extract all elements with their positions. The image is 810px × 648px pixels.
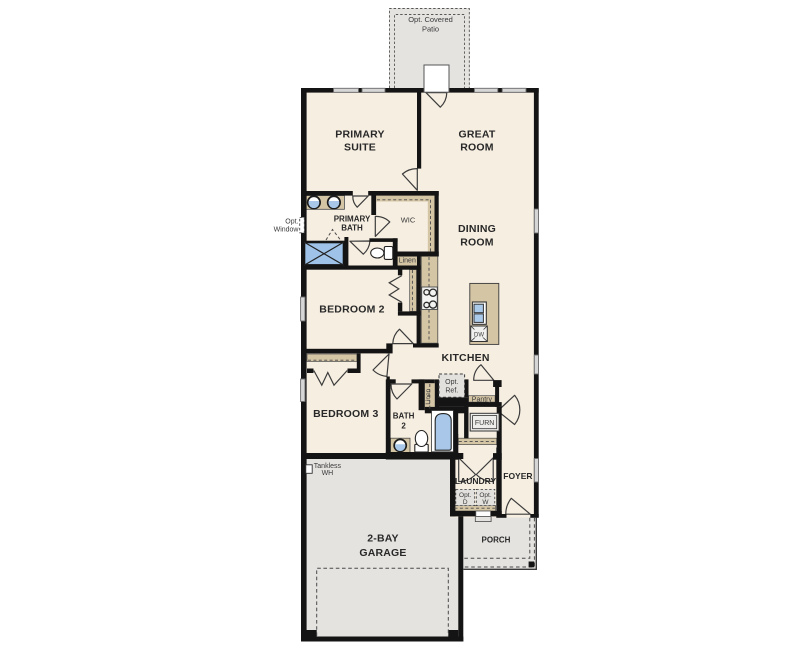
svg-text:Linen: Linen [425,388,432,404]
svg-text:Ref.: Ref. [445,388,458,395]
svg-text:GREAT: GREAT [459,129,496,141]
svg-text:Window: Window [274,227,300,234]
svg-text:W: W [482,499,489,506]
svg-text:Linen: Linen [399,258,416,265]
svg-text:Opt.: Opt. [445,379,458,386]
svg-text:LAUNDRY: LAUNDRY [455,476,497,486]
svg-text:ROOM: ROOM [460,142,494,154]
svg-text:DINING: DINING [458,223,496,235]
svg-text:GARAGE: GARAGE [359,547,406,559]
svg-text:Opt.: Opt. [285,219,298,226]
svg-text:PRIMARY: PRIMARY [335,129,384,141]
svg-text:FOYER: FOYER [503,471,532,481]
svg-text:2-BAY: 2-BAY [367,533,399,545]
svg-text:ROOM: ROOM [460,237,494,249]
svg-text:SUITE: SUITE [344,142,376,154]
svg-text:WH: WH [322,470,334,477]
svg-text:Opt.: Opt. [479,492,491,499]
svg-text:Patio: Patio [422,25,439,34]
svg-text:BATH: BATH [341,224,363,233]
svg-text:BEDROOM 2: BEDROOM 2 [319,304,384,316]
svg-text:DW: DW [474,332,484,338]
svg-text:FURN: FURN [475,420,494,427]
svg-text:WIC: WIC [401,216,416,225]
svg-text:PRIMARY: PRIMARY [334,215,371,224]
svg-text:Opt. Covered: Opt. Covered [408,15,453,24]
svg-text:2: 2 [401,422,406,431]
svg-text:Tankless: Tankless [314,463,342,470]
svg-text:BATH: BATH [393,412,415,421]
svg-text:PORCH: PORCH [482,536,511,545]
svg-text:Opt.: Opt. [459,492,471,499]
svg-text:BEDROOM 3: BEDROOM 3 [313,408,378,420]
svg-text:D: D [463,499,468,506]
svg-text:Pantry: Pantry [472,397,493,404]
svg-text:KITCHEN: KITCHEN [442,352,490,364]
